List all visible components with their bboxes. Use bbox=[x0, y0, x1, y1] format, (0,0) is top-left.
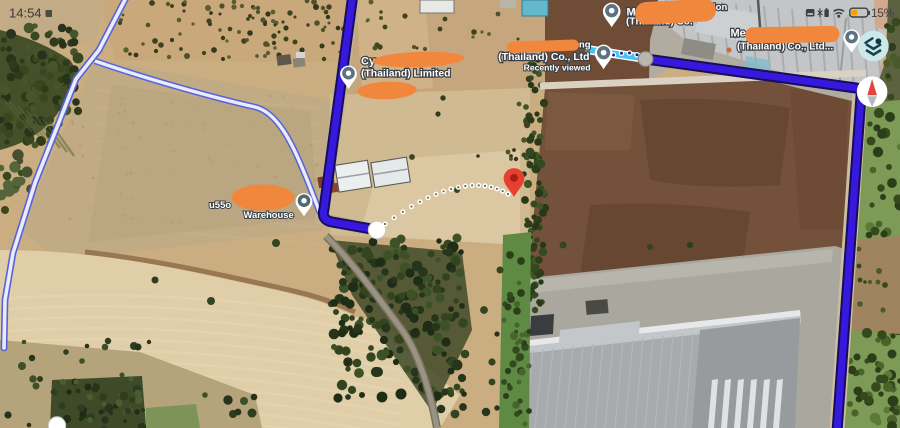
svg-text:Recently viewed: Recently viewed bbox=[524, 62, 591, 72]
svg-text:15%: 15% bbox=[871, 8, 894, 20]
svg-text:(Thailand) Limited: (Thailand) Limited bbox=[361, 69, 450, 80]
svg-text:Warehouse: Warehouse bbox=[244, 209, 294, 220]
svg-text:ng: ng bbox=[579, 40, 591, 51]
svg-text:14:54: 14:54 bbox=[9, 6, 42, 21]
svg-text:u55o: u55o bbox=[209, 200, 231, 211]
svg-text:Me: Me bbox=[731, 27, 746, 39]
svg-text:(Thailand) Co., Ltd: (Thailand) Co., Ltd bbox=[498, 52, 589, 63]
